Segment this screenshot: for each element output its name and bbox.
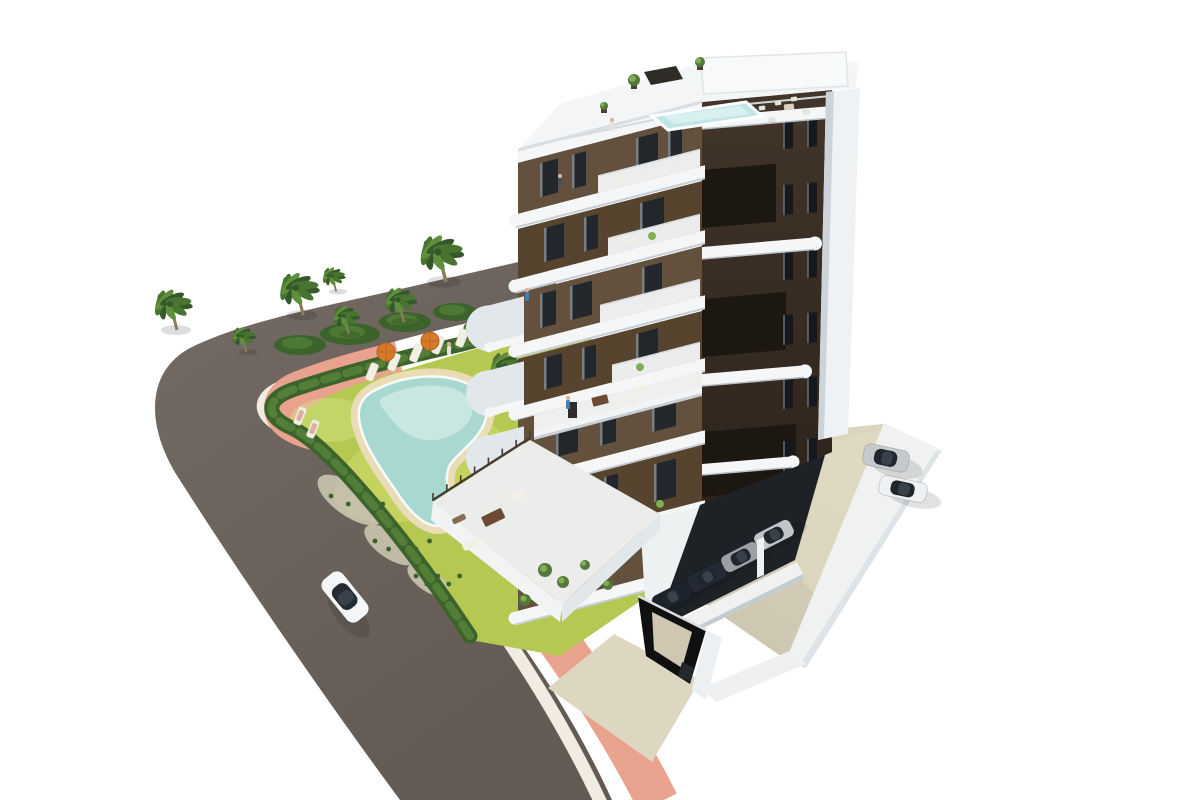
side-window <box>808 182 817 213</box>
side-window <box>808 247 817 278</box>
window-glass-reflection <box>570 286 573 321</box>
recessed-balcony <box>702 164 776 228</box>
person-head <box>447 342 451 346</box>
side-window <box>784 184 793 215</box>
window-glass-reflection <box>584 217 587 252</box>
person-body <box>558 178 562 187</box>
roof-plant-highlight <box>600 102 604 106</box>
person <box>447 342 451 355</box>
parasol <box>421 332 439 350</box>
gravel-plant <box>329 494 334 499</box>
terrace-shrub-highlight <box>540 565 547 572</box>
palm-crown <box>395 297 400 302</box>
window-glass-reflection <box>540 163 543 198</box>
palm-tree <box>322 266 347 295</box>
palm-shadow <box>329 289 347 295</box>
side-window <box>784 249 793 280</box>
window-glass-reflection <box>544 357 547 390</box>
palm-crown <box>293 285 299 291</box>
side-balcony-slab-end <box>484 342 494 352</box>
side-window <box>808 116 817 147</box>
roof-back-volume <box>700 52 848 94</box>
gravel-plant <box>346 502 351 507</box>
parasol <box>377 343 395 361</box>
terrace-shrub-highlight <box>559 578 565 584</box>
person-body <box>525 292 529 301</box>
wrap-band-rounded-end <box>808 236 822 250</box>
palm-tree <box>418 233 464 288</box>
roof-chair <box>775 101 781 106</box>
gravel-plant <box>427 539 432 544</box>
palm-crown <box>240 334 244 338</box>
balcony-furniture <box>626 239 635 244</box>
window <box>544 223 564 262</box>
side-window <box>784 314 793 345</box>
recessed-balcony <box>702 292 786 357</box>
person <box>525 288 529 301</box>
person-head <box>525 288 529 292</box>
person-body <box>610 122 614 131</box>
fence-post <box>474 466 476 474</box>
palm-shadow <box>239 349 258 355</box>
render-canvas <box>0 0 1200 800</box>
gravel-plant <box>373 539 378 544</box>
roof-chair <box>803 110 809 115</box>
palm-tree <box>153 287 193 335</box>
roof-chair <box>759 106 765 111</box>
window <box>544 353 562 390</box>
balcony-furniture <box>616 176 625 181</box>
person-head <box>558 174 562 178</box>
person <box>610 118 614 131</box>
side-window <box>808 376 817 407</box>
person-body <box>447 346 451 355</box>
fence-post <box>515 440 517 448</box>
window-glass-reflection <box>654 464 657 503</box>
terrace-shrub-highlight <box>581 561 586 566</box>
window-glass-reflection <box>572 154 575 189</box>
palm-crown <box>435 249 442 256</box>
fence-post <box>488 458 490 466</box>
bush-highlight <box>439 305 465 316</box>
gravel-plant <box>446 582 451 587</box>
wrap-band-rounded-end <box>798 364 812 378</box>
roof-plant-highlight <box>629 75 636 82</box>
balcony-plant <box>648 232 656 240</box>
window <box>654 458 676 502</box>
balcony-plant <box>656 500 664 508</box>
deck-bottom-wall <box>702 650 806 702</box>
balcony-furniture <box>618 306 627 311</box>
roof-chair <box>769 118 775 123</box>
person-body <box>566 400 570 409</box>
scene-svg <box>0 0 1200 800</box>
fence-post <box>432 493 434 501</box>
palm-crown <box>167 301 173 307</box>
roof-plant-highlight <box>696 58 702 64</box>
gravel-plant <box>386 547 391 552</box>
side-balcony-slab-end <box>484 407 494 417</box>
roof-table <box>784 103 795 110</box>
balcony-plant <box>636 363 644 371</box>
gravel-plant <box>457 574 462 579</box>
window-glass-reflection <box>544 227 547 262</box>
window <box>540 159 558 198</box>
palm-shadow <box>340 331 361 338</box>
fence-post <box>529 431 531 439</box>
terrace-shrub-highlight <box>604 581 609 586</box>
palm-crown <box>342 314 346 318</box>
person <box>558 174 562 187</box>
person <box>566 396 570 409</box>
window-glass-reflection <box>540 293 543 328</box>
fence-post <box>460 475 462 483</box>
fence-post <box>501 449 503 457</box>
bush-highlight <box>281 337 312 349</box>
side-window <box>784 378 793 409</box>
window <box>570 281 592 321</box>
person-head <box>566 396 570 400</box>
side-window <box>808 312 817 343</box>
gravel-plant <box>414 574 419 579</box>
parking-pillar <box>757 537 764 578</box>
window-glass-reflection <box>582 347 585 380</box>
palm-tree <box>278 270 320 320</box>
roof-chair <box>791 97 797 102</box>
palm-crown <box>330 274 334 278</box>
side-window <box>784 118 793 149</box>
terrace-shrub-highlight <box>521 596 527 602</box>
fence-post <box>446 484 448 492</box>
person-head <box>610 118 614 122</box>
